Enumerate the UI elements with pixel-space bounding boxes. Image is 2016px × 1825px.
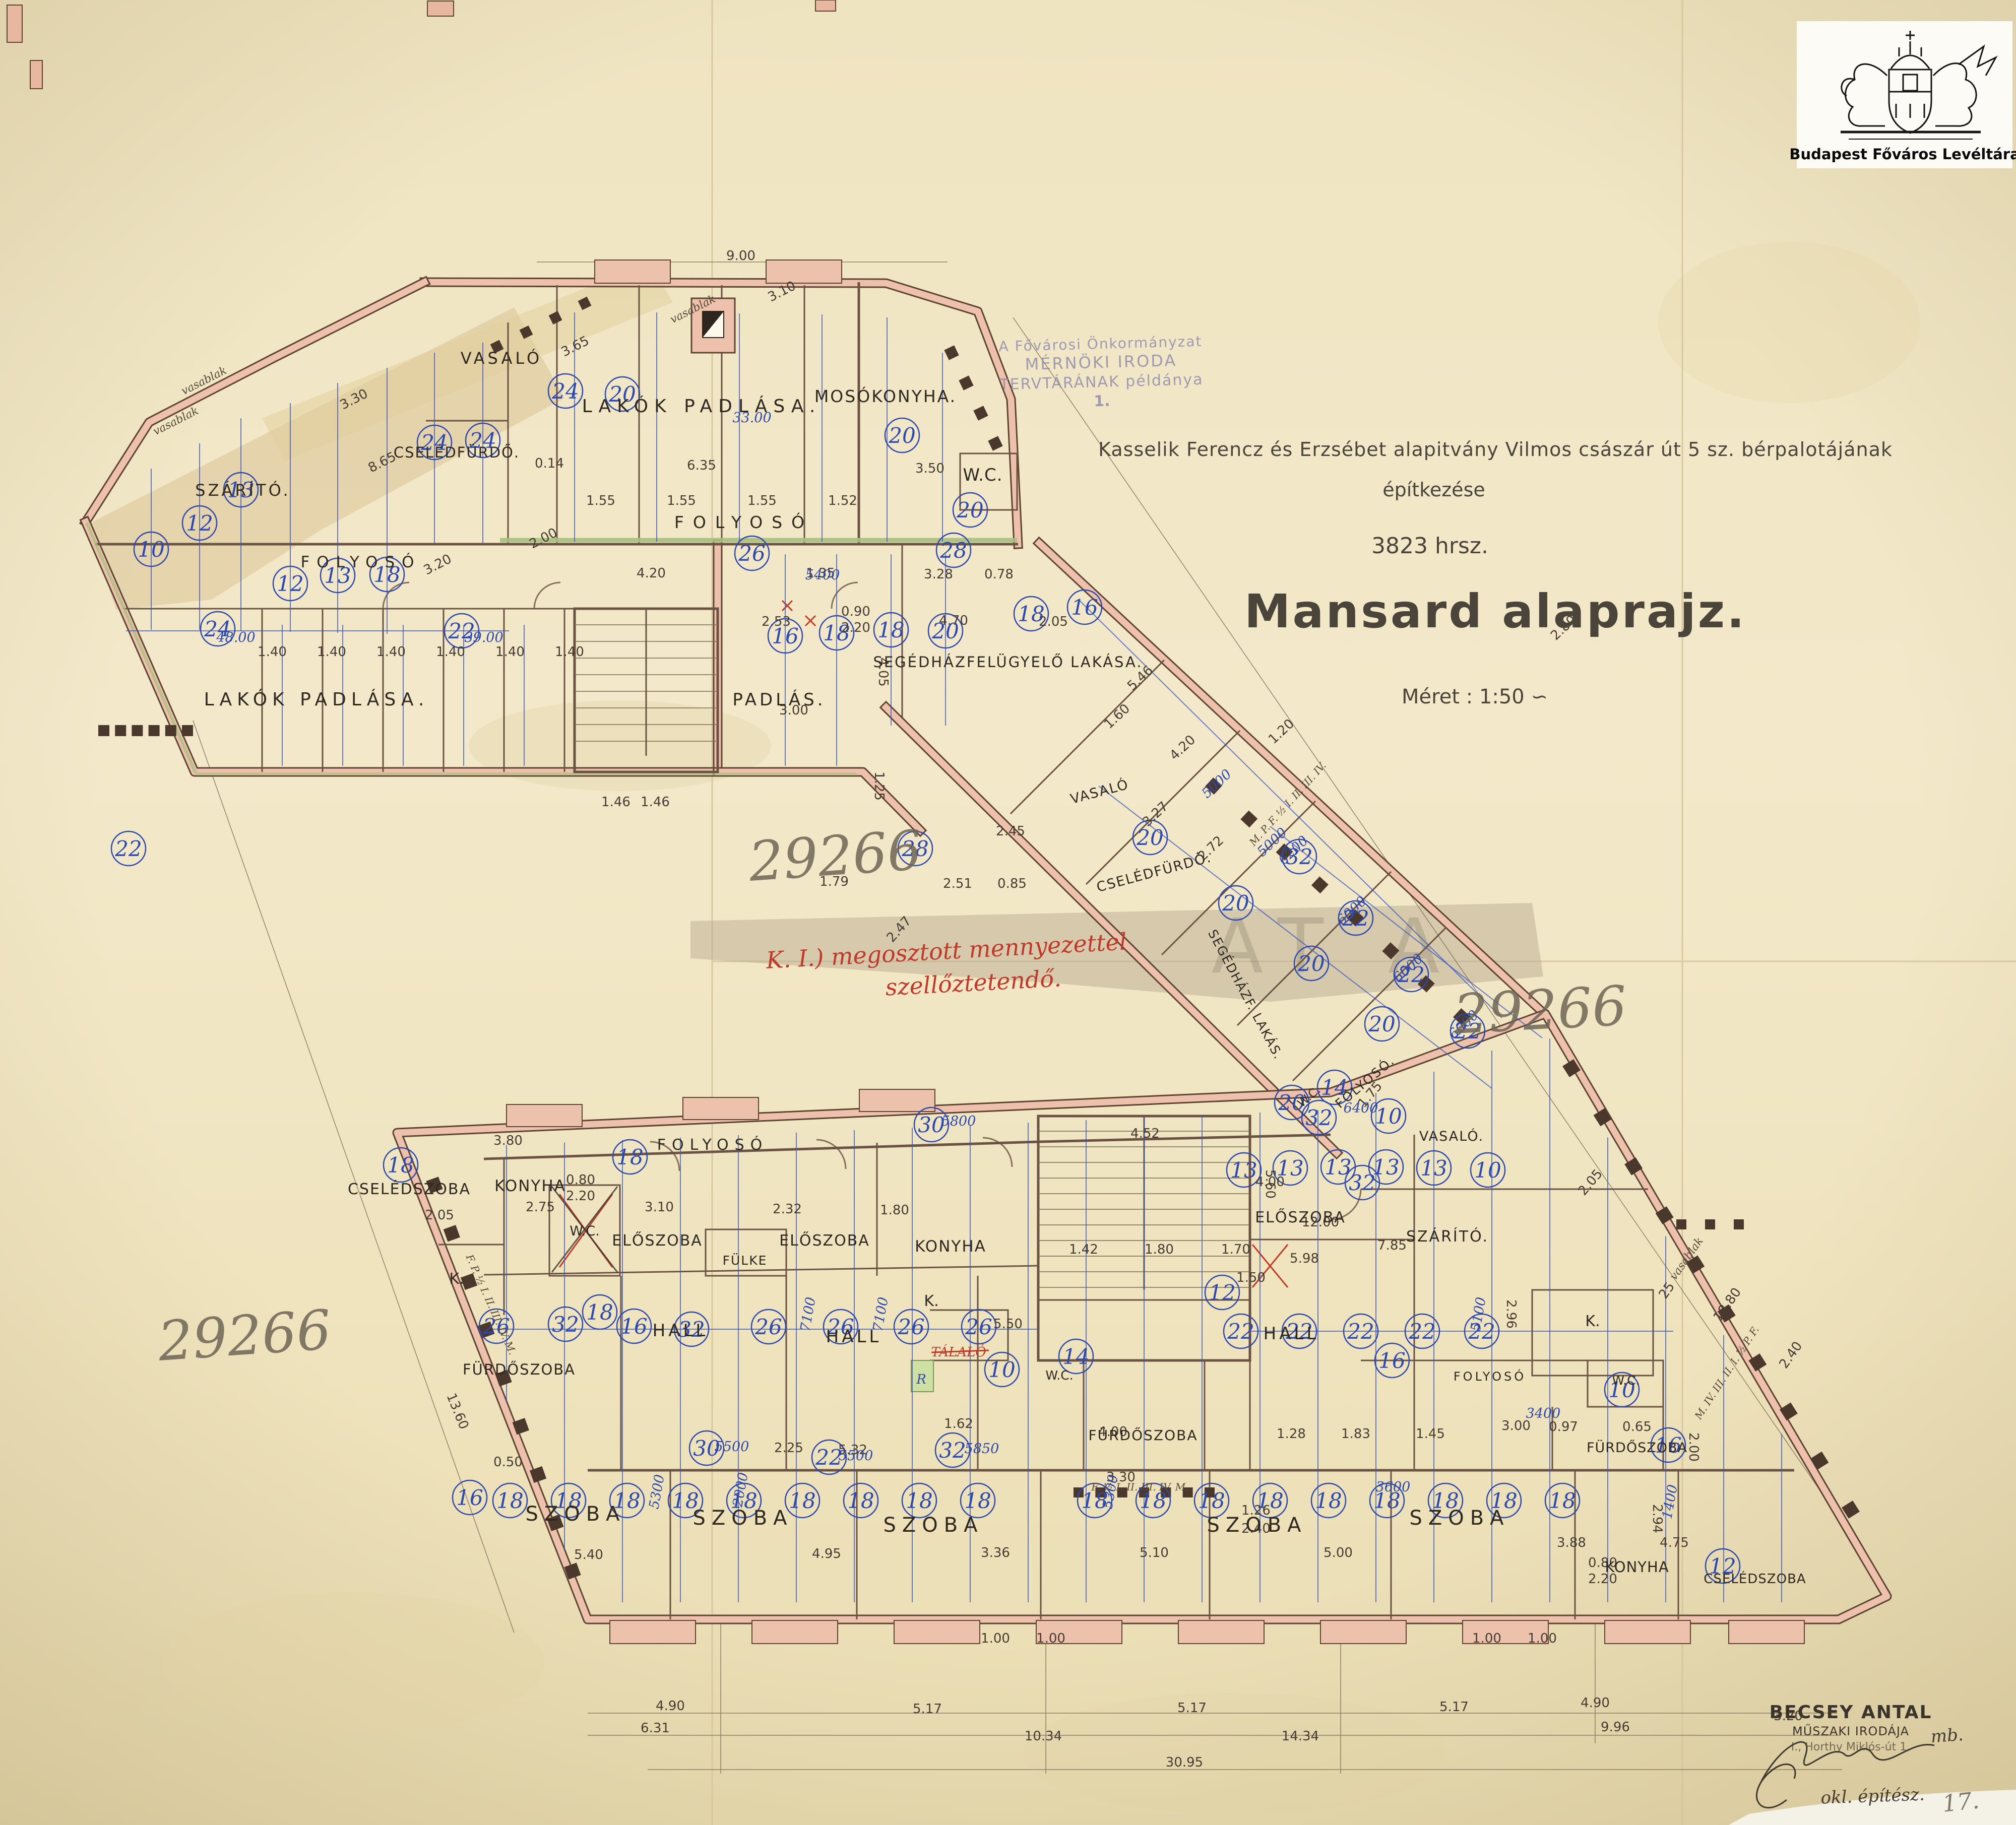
position-circle: 26 (962, 1310, 996, 1344)
position-circle: 12 (1205, 1275, 1239, 1310)
dimension-label: 2.51 (943, 876, 972, 891)
window-hatch (98, 725, 109, 736)
registry-stamp-number: 1. (1094, 393, 1110, 411)
room-label: SEGÉDHÁZFELÜGYELŐ LAKÁSA. (873, 654, 1143, 671)
position-circle-number: 18 (964, 1488, 991, 1513)
architect-address: I., Horthy Miklós-út 1. (1791, 1741, 1910, 1753)
window-bay (766, 260, 842, 283)
position-circle-number: 22 (1347, 1319, 1374, 1344)
room-label: FÜLKE (723, 1253, 768, 1268)
dimension-label: 2.05 (425, 1208, 454, 1223)
window-bay (610, 1620, 696, 1644)
room-letter: R (916, 1372, 926, 1387)
blue-dimension-label: 3400 (1526, 1406, 1561, 1421)
position-circle: 13 (1321, 1150, 1355, 1184)
dimension-label: 1.46 (601, 795, 631, 810)
window-bay (1729, 1620, 1804, 1644)
handwritten-ink-note: okl. építész. (1820, 1784, 1925, 1808)
title-line1: Kasselik Ferencz és Erzsébet alapitvány … (1098, 438, 1893, 461)
position-circle-number: 18 (586, 1300, 613, 1325)
position-circle-number: 26 (897, 1315, 924, 1339)
dimension-label: 1.45 (1416, 1426, 1445, 1442)
architect-name: BECSEY ANTAL (1770, 1702, 1932, 1723)
dimension-label: 1.55 (747, 493, 777, 508)
window-hatch (115, 725, 126, 736)
position-circle: 22 (1344, 1314, 1378, 1348)
dimension-label: 5.17 (1177, 1701, 1207, 1716)
window-bay (859, 1089, 935, 1112)
blue-dimension-label: 3600 (1376, 1479, 1411, 1495)
dimension-label: 1.42 (1069, 1242, 1098, 1257)
position-circle: 22 (111, 831, 146, 866)
room-label: FÜRDŐSZOBA (463, 1361, 576, 1378)
dimension-label: 1.40 (317, 644, 346, 660)
archive-logo: Budapest Főváros Levéltára (1789, 21, 2016, 168)
position-circle-number: 16 (1071, 595, 1098, 620)
dimension-label: 0.14 (535, 456, 564, 471)
position-circle: 18 (902, 1483, 936, 1518)
dimension-label: 0.90 (841, 604, 870, 619)
scanned-floor-plan-sheet: AT A (0, 0, 2016, 1825)
window-bay (752, 1620, 838, 1644)
position-circle: 20 (885, 418, 919, 452)
dimension-label: 1.55 (586, 493, 615, 508)
position-circle-number: 10 (988, 1357, 1015, 1382)
position-circle-number: 26 (738, 541, 765, 566)
window-bay (894, 1620, 980, 1644)
dimension-label: 0.85 (997, 876, 1027, 891)
room-label: KONYHA (1605, 1558, 1669, 1576)
room-label: K. (449, 1270, 464, 1288)
dimension-label: 2.20 (841, 620, 870, 635)
pencil-archive-number: 17. (1941, 1786, 1980, 1817)
blue-dimension-label: 39.00 (464, 630, 503, 645)
dimension-label: 4.90 (1581, 1696, 1610, 1711)
position-circle-number: 13 (1420, 1156, 1447, 1181)
window-bay (683, 1097, 759, 1120)
dimension-label: 1.00 (1528, 1631, 1557, 1646)
dimension-label: 2.25 (774, 1441, 803, 1456)
blue-dimension-label: 5800 (941, 1114, 976, 1129)
position-circle-number: 22 (114, 836, 142, 861)
title-main: Mansard alaprajz. (1244, 584, 1746, 638)
position-circle-number: 22 (1227, 1319, 1254, 1344)
dimension-label: 4.95 (812, 1546, 841, 1561)
position-circle: 20 (1219, 886, 1253, 920)
position-circle-number: 18 (616, 1145, 643, 1169)
window-bay (595, 260, 670, 283)
dimension-label: 4.00 (1255, 1175, 1285, 1190)
position-circle-number: 18 (1549, 1488, 1576, 1513)
position-circle: 16 (617, 1309, 651, 1343)
position-circle-number: 16 (1378, 1348, 1405, 1373)
dimension-label: 1.46 (641, 795, 670, 810)
dimension-label: 1.40 (555, 644, 584, 660)
position-circle-number: 12 (277, 571, 303, 596)
window-hatch (1676, 1219, 1686, 1229)
room-label: SZOBA (1409, 1507, 1509, 1530)
position-circle-number: 18 (496, 1488, 523, 1513)
dimension-label: 5.17 (913, 1702, 942, 1717)
position-circle: 20 (1294, 946, 1329, 981)
position-circle: 12 (182, 506, 217, 540)
room-label: VASALÓ. (1419, 1128, 1484, 1144)
position-circle: 26 (894, 1310, 928, 1344)
dimension-label: 1.80 (880, 1203, 909, 1218)
blue-dimension-label: 5400 (805, 567, 840, 583)
position-circle-number: 18 (387, 1153, 414, 1178)
dimension-label: 3.36 (981, 1545, 1010, 1560)
room-label: SZOBA (692, 1507, 793, 1530)
room-label: ELŐSZOBA (779, 1231, 870, 1250)
position-circle-number: 20 (956, 498, 983, 523)
position-circle: 10 (1471, 1153, 1505, 1187)
position-circle-number: 18 (877, 618, 904, 642)
blue-dimension-label: 5500 (715, 1439, 749, 1455)
dimension-label: 9.96 (1601, 1720, 1630, 1735)
room-label: LAKÓK PADLÁSA. (582, 396, 822, 417)
title-scale: Méret : 1:50 ∽ (1402, 685, 1548, 708)
position-circle-number: 20 (1297, 951, 1325, 976)
position-circle-number: 32 (1349, 1170, 1375, 1195)
position-circle-number: 10 (1474, 1158, 1501, 1183)
position-circle-number: 24 (551, 379, 579, 404)
position-circle: 24 (548, 374, 583, 408)
dimension-label: 0.65 (1622, 1419, 1652, 1435)
position-circle-number: 16 (456, 1485, 483, 1510)
room-label: FÜRDŐSZOBA (1088, 1426, 1198, 1444)
position-circle-number: 10 (1375, 1104, 1402, 1129)
dimension-label: 1.00 (981, 1631, 1010, 1646)
position-circle-number: 28 (939, 538, 967, 563)
position-circle: 18 (844, 1483, 878, 1518)
position-circle-number: 18 (1315, 1488, 1342, 1513)
dimension-label: 2.20 (566, 1189, 595, 1204)
room-label: SZOBA (1207, 1514, 1307, 1537)
dimension-label: 1.40 (436, 644, 465, 660)
room-label: FOLYOSÓ (1454, 1368, 1526, 1384)
room-label: K. (1585, 1313, 1600, 1330)
dimension-label: 30.95 (1166, 1755, 1203, 1770)
dimension-label: 1.83 (1341, 1426, 1370, 1442)
position-circle: 18 (961, 1483, 995, 1518)
dimension-label: 1.55 (667, 493, 696, 508)
position-circle: 18 (384, 1148, 418, 1182)
position-circle: 26 (751, 1310, 786, 1344)
room-label: MOSÓKONYHA. (814, 386, 957, 406)
dimension-label: 5.10 (1140, 1545, 1169, 1560)
dimension-label: 14.34 (1282, 1729, 1319, 1744)
room-label: VASALÓ (461, 348, 542, 368)
position-circle-number: 20 (1368, 1012, 1395, 1036)
position-circle-number: 20 (1222, 891, 1249, 916)
dimension-label: 0.78 (984, 567, 1014, 582)
position-circle: 20 (1365, 1007, 1399, 1041)
dimension-label: 1.40 (376, 644, 406, 660)
position-circle-number: 18 (847, 1488, 874, 1513)
room-label: LAKÓK PADLÁSA. (204, 689, 429, 710)
room-label: SZÁRÍTÓ. (195, 480, 290, 500)
dimension-label: 5.50 (993, 1317, 1023, 1332)
position-circle: 22 (1405, 1314, 1439, 1348)
window-hatch (1705, 1219, 1715, 1229)
position-circle: 18 (1545, 1483, 1580, 1518)
dimension-label: 1.00 (1472, 1631, 1501, 1646)
room-label: HALL (826, 1327, 882, 1347)
position-circle: 18 (493, 1483, 527, 1518)
room-label: CSELÉDSZOBA (1704, 1571, 1806, 1587)
blue-dimension-label: 5850 (965, 1441, 999, 1457)
dimension-label: 4.75 (1660, 1535, 1689, 1550)
position-circle: 32 (548, 1307, 583, 1341)
dimension-label: 3.50 (915, 461, 944, 476)
position-circle: 16 (1067, 590, 1102, 624)
dimension-label: 2.05 (1039, 614, 1068, 629)
archive-name: Budapest Főváros Levéltára (1789, 146, 2016, 163)
position-circle: 16 (1375, 1343, 1409, 1378)
dimension-label: 1.50 (1236, 1270, 1266, 1285)
dimension-label: 2.53 (762, 614, 791, 629)
position-circle-number: 18 (906, 1488, 932, 1513)
dimension-label: 3.28 (924, 567, 953, 582)
dimension-label: 0.80 (566, 1172, 595, 1188)
position-circle-number: 18 (1198, 1488, 1225, 1513)
window-hatch (165, 725, 176, 736)
room-label: W.C. (1612, 1373, 1640, 1388)
dimension-label: 3.88 (1557, 1535, 1586, 1550)
dimension-label: 3.80 (493, 1133, 523, 1148)
position-circle: 28 (936, 533, 971, 567)
position-circle-number: 12 (1209, 1280, 1235, 1305)
position-circle-number: 20 (888, 423, 915, 448)
position-circle-number: 16 (620, 1314, 647, 1339)
position-circle: 18 (874, 613, 908, 647)
blue-dimension-label: 5500 (839, 1448, 873, 1464)
room-label: CSELÉDSZOBA (348, 1180, 471, 1198)
position-circle: 16 (453, 1480, 487, 1515)
position-circle: 10 (134, 532, 168, 566)
position-circle-number: 14 (1062, 1344, 1089, 1369)
position-circle-number: 22 (1408, 1319, 1435, 1344)
crossed-out-room-label: TÁLALÓ (931, 1344, 986, 1360)
dimension-label: 2.00 (1686, 1432, 1701, 1462)
position-circle: 20 (953, 493, 987, 527)
dimension-label: 5.00 (1324, 1545, 1353, 1560)
dimension-label: 2.96 (1503, 1299, 1519, 1329)
window-bay (1320, 1620, 1406, 1644)
room-label: KONYHA (915, 1237, 986, 1256)
room-label: K. (924, 1292, 938, 1310)
room-label: FOLYOSÓ (300, 553, 421, 571)
pencil-archive-number: 29266 (746, 819, 924, 894)
dimension-label: 4.90 (656, 1699, 685, 1714)
room-label: W.C. (963, 465, 1002, 485)
dimension-label: 4.20 (637, 566, 666, 581)
dimension-label: 1.62 (944, 1416, 973, 1431)
position-circle: 18 (1311, 1483, 1346, 1518)
position-circle: 10 (985, 1352, 1019, 1387)
room-label: HALL (653, 1321, 709, 1341)
window-hatch (149, 725, 160, 736)
dimension-label: 5.17 (1439, 1700, 1469, 1715)
room-label: PADLÁS. (732, 689, 826, 710)
window-bay (1178, 1620, 1264, 1644)
title-line2: építkezése (1382, 479, 1485, 501)
room-label: KONYHA (494, 1177, 566, 1195)
dimension-label: 6.31 (641, 1721, 670, 1736)
pencil-archive-number: 29266 (1452, 974, 1628, 1047)
room-label: ELŐSZOBA (1255, 1208, 1346, 1226)
position-circle-number: 26 (754, 1315, 782, 1339)
room-label: W.C. (1045, 1368, 1073, 1383)
position-circle-number: 13 (1230, 1158, 1257, 1183)
position-circle-number: 13 (1372, 1155, 1399, 1180)
dimension-label: 0.50 (493, 1455, 523, 1470)
handwritten-ink-note: mb. (1930, 1725, 1964, 1747)
position-circle: 12 (273, 566, 307, 601)
blue-dimension-label: 48.00 (216, 630, 255, 645)
position-circle-number: 10 (138, 537, 164, 562)
dimension-label: 1.40 (258, 644, 287, 660)
position-circle-number: 32 (1305, 1105, 1332, 1130)
dimension-label: 1.25 (871, 771, 887, 801)
dimension-label: 1.52 (828, 493, 857, 508)
window-bay (1605, 1620, 1690, 1644)
dimension-label: 4.52 (1130, 1126, 1160, 1141)
room-label: ELŐSZOBA (612, 1231, 703, 1250)
position-circle: 18 (1194, 1483, 1229, 1518)
position-circle: 13 (1417, 1151, 1451, 1185)
registry-stamp-line2: MÉRNÖKI IRODA (1025, 351, 1177, 374)
dimension-label: 5.98 (1290, 1251, 1319, 1266)
dimension-label: 4.70 (939, 613, 968, 628)
dimension-label: 1.00 (1036, 1631, 1065, 1646)
window-hatch (132, 725, 143, 736)
position-circle: 18 (583, 1295, 617, 1329)
window-bay (507, 1104, 582, 1127)
room-label: W.C. (570, 1223, 600, 1239)
dimension-label: 1.28 (1277, 1426, 1306, 1442)
dimension-label: 3.10 (645, 1200, 674, 1215)
window-hatch (1734, 1219, 1744, 1229)
dimension-label: 10.34 (1025, 1729, 1062, 1744)
architect-office: MŰSZAKI IRODÁJA (1792, 1723, 1909, 1738)
position-circle-number: 13 (1325, 1155, 1351, 1180)
position-circle: 26 (735, 536, 769, 570)
plan-canvas: AT A (0, 0, 2016, 1825)
room-label: CSELÉDFÜRDŐ. (394, 444, 520, 461)
title-lot-number: 3823 hrsz. (1371, 533, 1488, 559)
window-hatch (182, 725, 193, 736)
position-circle: 18 (613, 1140, 647, 1174)
dimension-label: 2.75 (526, 1200, 555, 1215)
dimension-label: 1.40 (495, 644, 525, 660)
pencil-archive-number: 29266 (156, 1298, 333, 1374)
position-circle-number: 32 (552, 1312, 579, 1337)
dimension-label: 7.85 (1377, 1238, 1407, 1253)
dimension-label: 5.40 (574, 1547, 603, 1562)
room-label: FÜRDŐSZOBA (1587, 1440, 1687, 1456)
room-label: FOLYOSÓ (674, 512, 813, 532)
dimension-label: 2.45 (996, 824, 1025, 839)
position-circle: 22 (1224, 1314, 1258, 1348)
position-circle-number: 32 (939, 1438, 966, 1463)
room-label: FOLYOSÓ (657, 1135, 769, 1154)
dimension-label: 9.00 (726, 248, 755, 264)
dimension-label: 2.32 (773, 1202, 802, 1217)
dimension-label: 1.70 (1221, 1242, 1250, 1257)
position-circle-number: 26 (965, 1315, 992, 1339)
stair-letter-row: F. ½ I. II. III. IV. M. (1091, 1481, 1188, 1493)
room-label: SZOBA (525, 1503, 625, 1526)
room-label: SZOBA (883, 1514, 983, 1537)
dimension-label: 6.35 (687, 458, 716, 473)
position-circle-number: 12 (186, 511, 213, 536)
dimension-label: 1.80 (1145, 1242, 1174, 1257)
position-circle: 13 (1369, 1150, 1403, 1184)
room-label: HALL (1264, 1324, 1319, 1344)
dimension-label: 0.97 (1549, 1419, 1578, 1435)
room-label: SZÁRÍTÓ. (1406, 1227, 1489, 1246)
